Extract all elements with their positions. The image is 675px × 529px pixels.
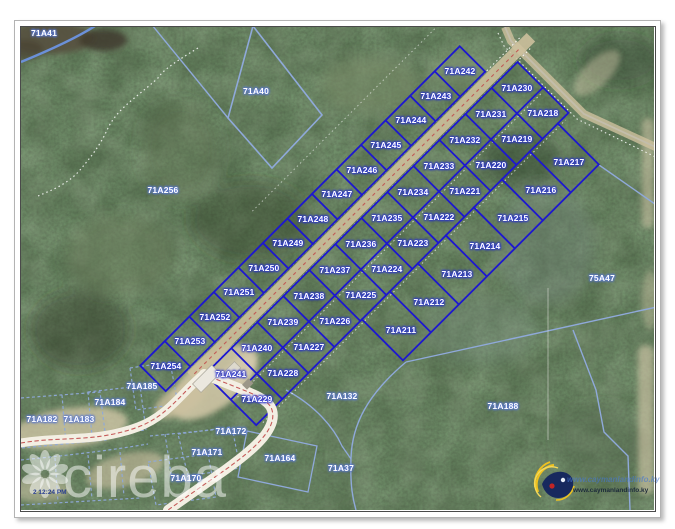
map-screenshot: 71A24271A24371A24471A24571A24671A24771A2… bbox=[0, 0, 675, 529]
map-frame bbox=[14, 20, 661, 518]
